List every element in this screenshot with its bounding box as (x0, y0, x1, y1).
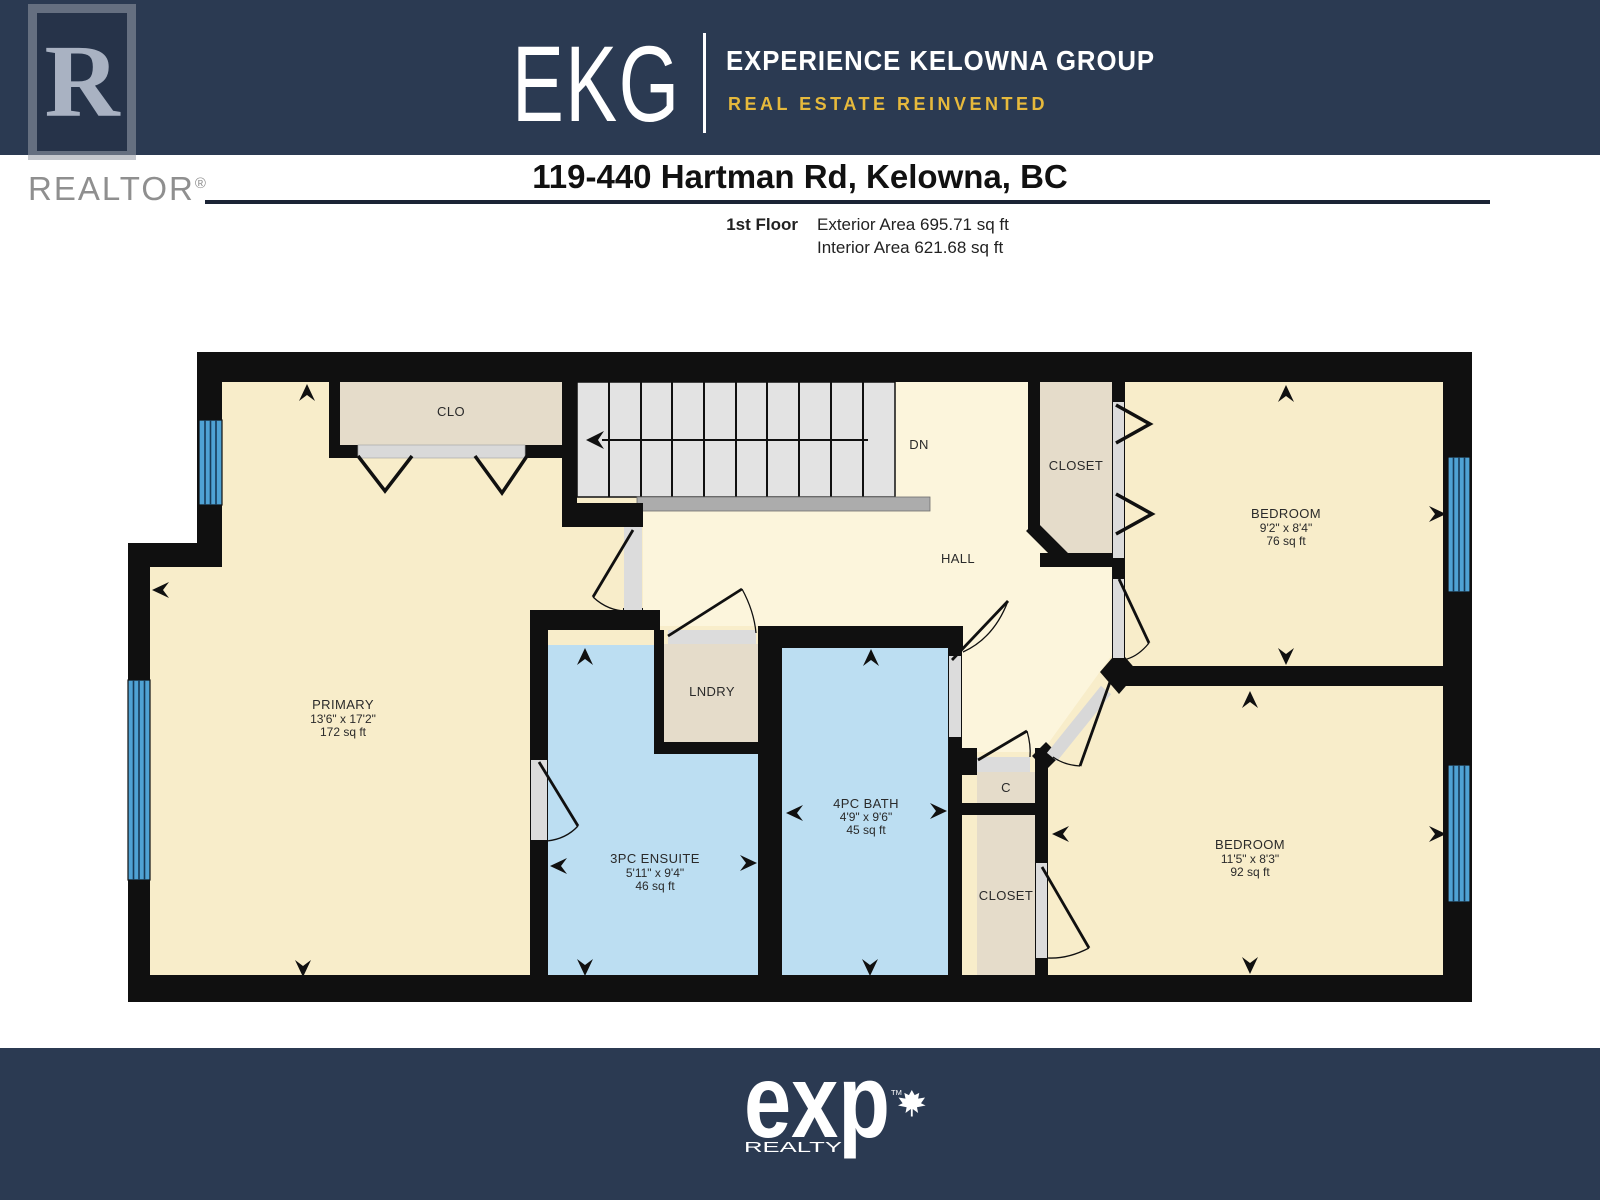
flyer-page: R REALTOR® EKG EXPERIENCE KELOWNA GROUP … (0, 0, 1600, 1200)
realtor-r-icon: R (44, 30, 119, 134)
label-bath-dims: 4'9" x 9'6" (840, 810, 892, 824)
realtor-logo-square: R (37, 13, 127, 151)
label-bath-area: 45 sq ft (846, 823, 886, 837)
window (128, 680, 150, 880)
stairs-railing (637, 497, 930, 511)
label-ensuite: 3PC ENSUITE (610, 851, 700, 866)
window (1448, 457, 1470, 592)
label-primary-area: 172 sq ft (320, 725, 367, 739)
floor-plan: PRIMARY 13'6" x 17'2" 172 sq ft CLO DN H… (0, 0, 1600, 1200)
label-bedroom1-dims: 9'2" x 8'4" (1260, 521, 1312, 535)
realtor-logo: R (28, 4, 136, 160)
label-primary: PRIMARY (312, 697, 374, 712)
label-bedroom1: BEDROOM (1251, 506, 1321, 521)
label-ensuite-area: 46 sq ft (635, 879, 675, 893)
label-bedroom2-area: 92 sq ft (1230, 865, 1270, 879)
label-closet-c: C (1001, 780, 1011, 795)
realtor-text: REALTOR (28, 170, 195, 207)
realtor-wordmark: REALTOR® (28, 170, 208, 208)
label-primary-dims: 13'6" x 17'2" (310, 712, 376, 726)
window (1448, 765, 1470, 902)
label-ensuite-dims: 5'11" x 9'4" (626, 866, 684, 880)
label-clo: CLO (437, 404, 465, 419)
footer-banner (0, 1048, 1600, 1200)
label-closet-hall: CLOSET (1049, 458, 1103, 473)
label-bedroom1-area: 76 sq ft (1266, 534, 1306, 548)
label-bath: 4PC BATH (833, 796, 899, 811)
label-bedroom2-dims: 11'5" x 8'3" (1221, 852, 1279, 866)
label-dn: DN (909, 437, 929, 452)
label-closet-bed2: CLOSET (979, 888, 1033, 903)
label-hall: HALL (941, 551, 975, 566)
window (199, 420, 222, 505)
registered-mark: ® (195, 175, 208, 192)
label-bedroom2: BEDROOM (1215, 837, 1285, 852)
floor-plan-svg: PRIMARY 13'6" x 17'2" 172 sq ft CLO DN H… (0, 0, 1600, 1200)
label-lndry: LNDRY (689, 684, 735, 699)
stairs (577, 382, 930, 511)
